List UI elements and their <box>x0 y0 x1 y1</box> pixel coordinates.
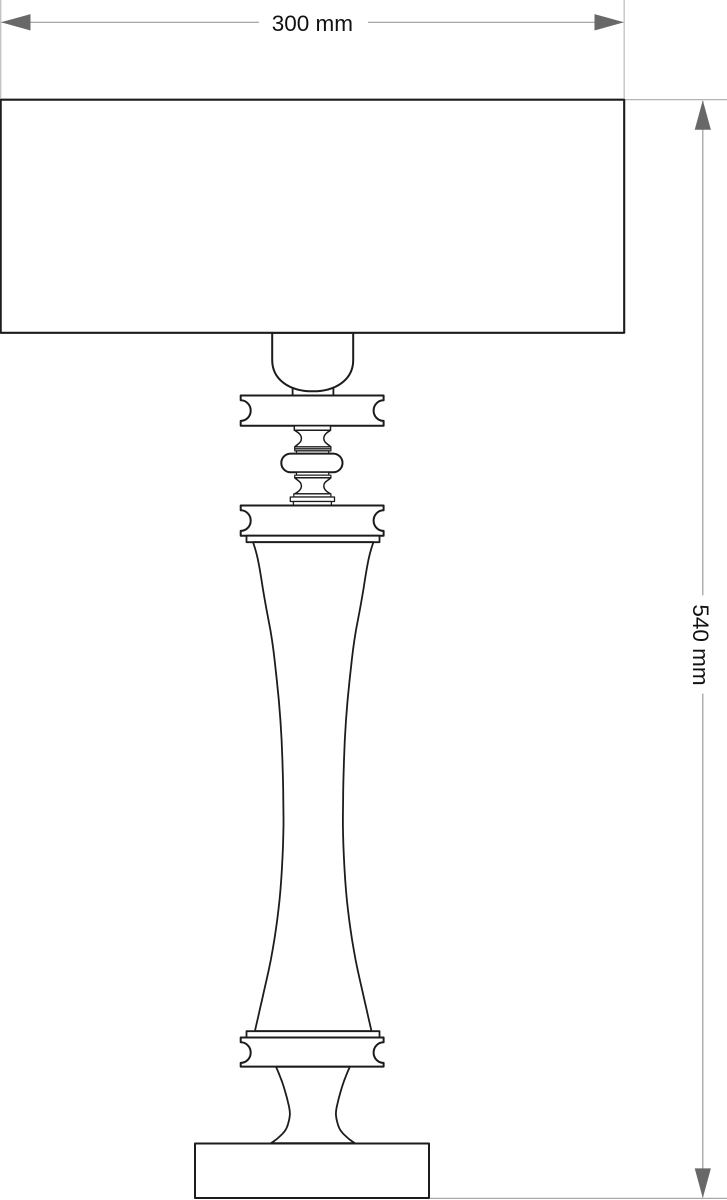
svg-text:300 mm: 300 mm <box>272 11 353 36</box>
svg-text:540 mm: 540 mm <box>688 604 713 685</box>
